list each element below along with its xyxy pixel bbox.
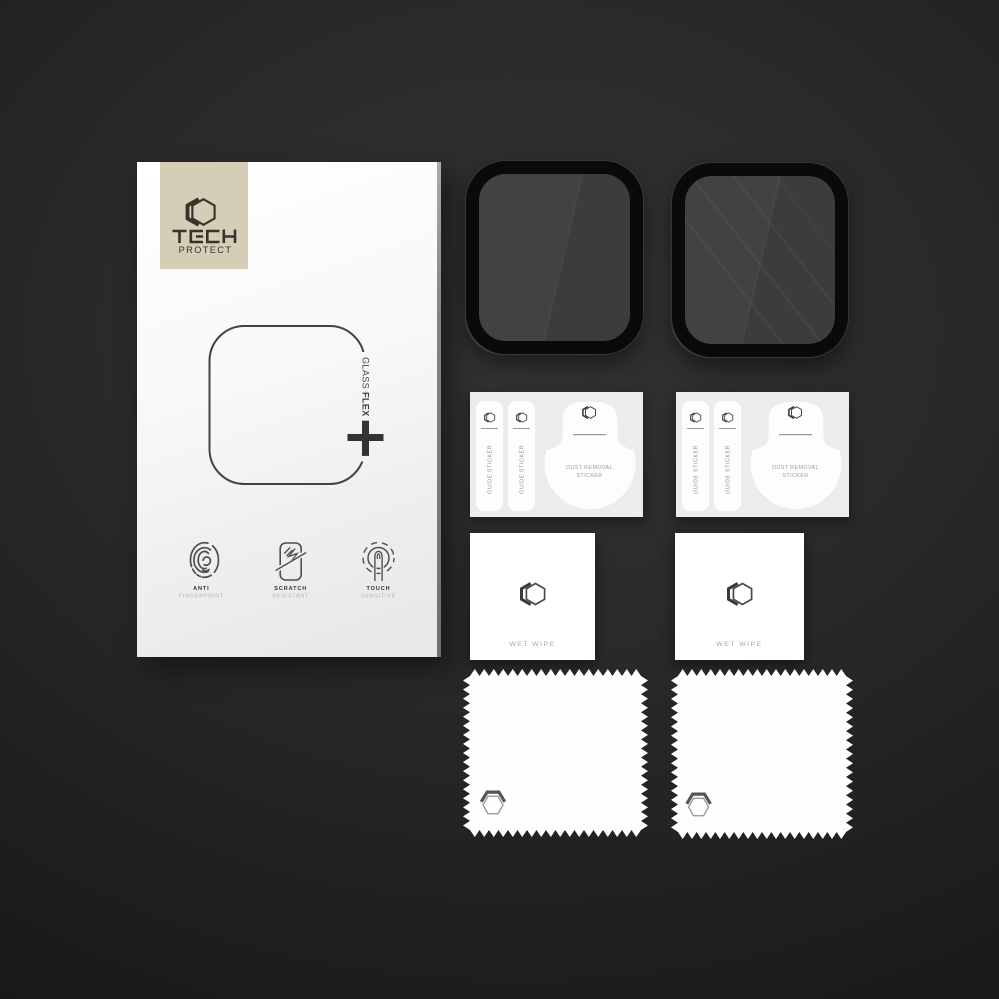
svg-text:STICKER: STICKER: [576, 473, 602, 479]
svg-text:PROTECT: PROTECT: [179, 245, 233, 255]
svg-text:TOUCH: TOUCH: [367, 586, 391, 592]
svg-text:DUST REMOVAL: DUST REMOVAL: [566, 465, 613, 471]
svg-text:FINGERPRINT: FINGERPRINT: [179, 594, 224, 600]
svg-text:GUIDE STICKER: GUIDE STICKER: [694, 445, 700, 494]
svg-text:SCRATCH: SCRATCH: [274, 586, 307, 592]
svg-text:RESISTANT: RESISTANT: [272, 594, 309, 600]
svg-text:STICKER: STICKER: [782, 473, 808, 479]
svg-text:WET WIPE: WET WIPE: [716, 641, 762, 648]
svg-text:SENSITIVE: SENSITIVE: [361, 594, 396, 600]
svg-text:GUIDE STICKER: GUIDE STICKER: [488, 445, 494, 494]
svg-text:GUIDE STICKER: GUIDE STICKER: [520, 445, 526, 494]
svg-text:GLASS FLEX: GLASS FLEX: [361, 357, 371, 417]
svg-text:DUST REMOVAL: DUST REMOVAL: [772, 465, 819, 471]
svg-text:WET WIPE: WET WIPE: [509, 641, 555, 648]
svg-text:ANTI: ANTI: [193, 586, 209, 592]
svg-text:GUIDE STICKER: GUIDE STICKER: [726, 445, 732, 494]
